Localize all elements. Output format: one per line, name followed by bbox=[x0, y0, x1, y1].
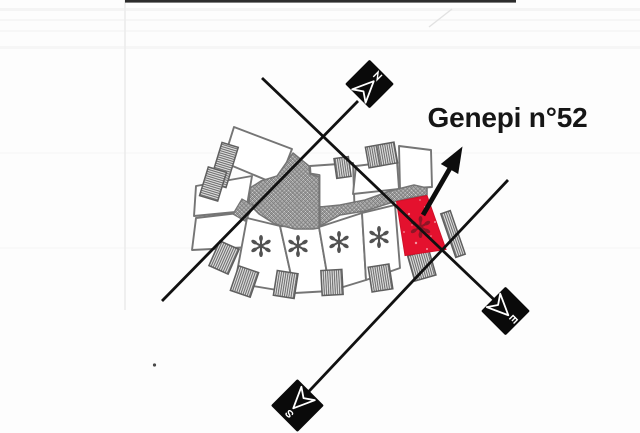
svg-text:Genepi n°52: Genepi n°52 bbox=[428, 102, 588, 133]
